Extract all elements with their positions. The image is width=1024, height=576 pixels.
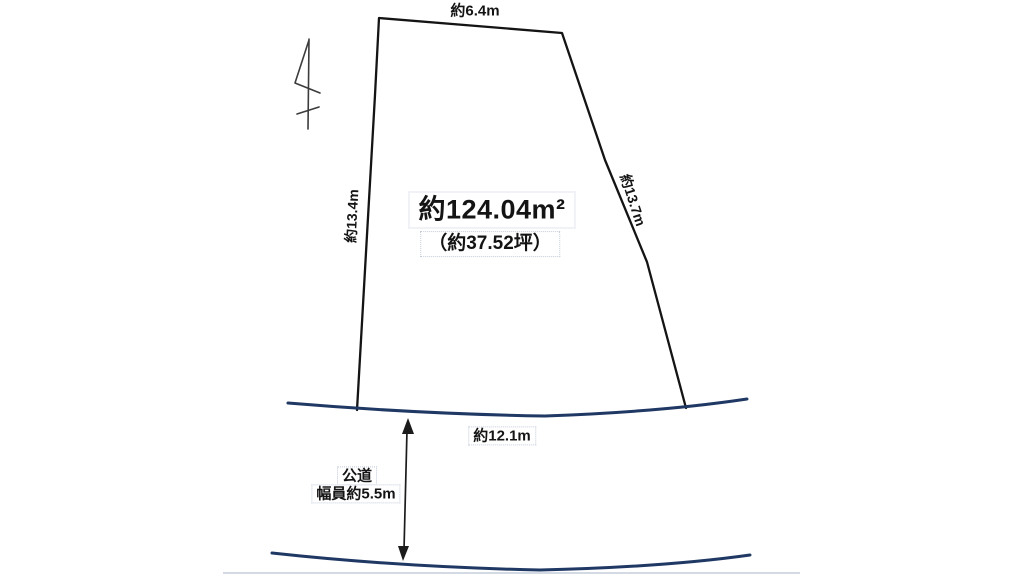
parcel-area-label: 約124.04m² xyxy=(408,191,575,228)
edge-left-length-label: 約13.4m xyxy=(343,189,362,243)
diagram-drawing xyxy=(0,0,1024,576)
road-width-arrow-head-top xyxy=(402,418,414,434)
road-far-edge-line xyxy=(272,553,750,570)
frontage-length-label: 約12.1m xyxy=(468,426,536,445)
road-width-arrow-shaft xyxy=(404,430,407,550)
road-name-label: 公道 xyxy=(337,466,377,485)
road-width-label: 幅員約5.5m xyxy=(311,484,400,503)
land-plot-diagram: 約6.4m 約13.4m 約13.7m 約124.04m² （約37.52坪） … xyxy=(0,0,1024,576)
edge-top-length-label: 約6.4m xyxy=(450,2,499,19)
north-mark-icon xyxy=(295,39,320,129)
parcel-area-tsubo-label: （約37.52坪） xyxy=(420,231,560,257)
road-width-arrow-head-bottom xyxy=(398,546,409,561)
